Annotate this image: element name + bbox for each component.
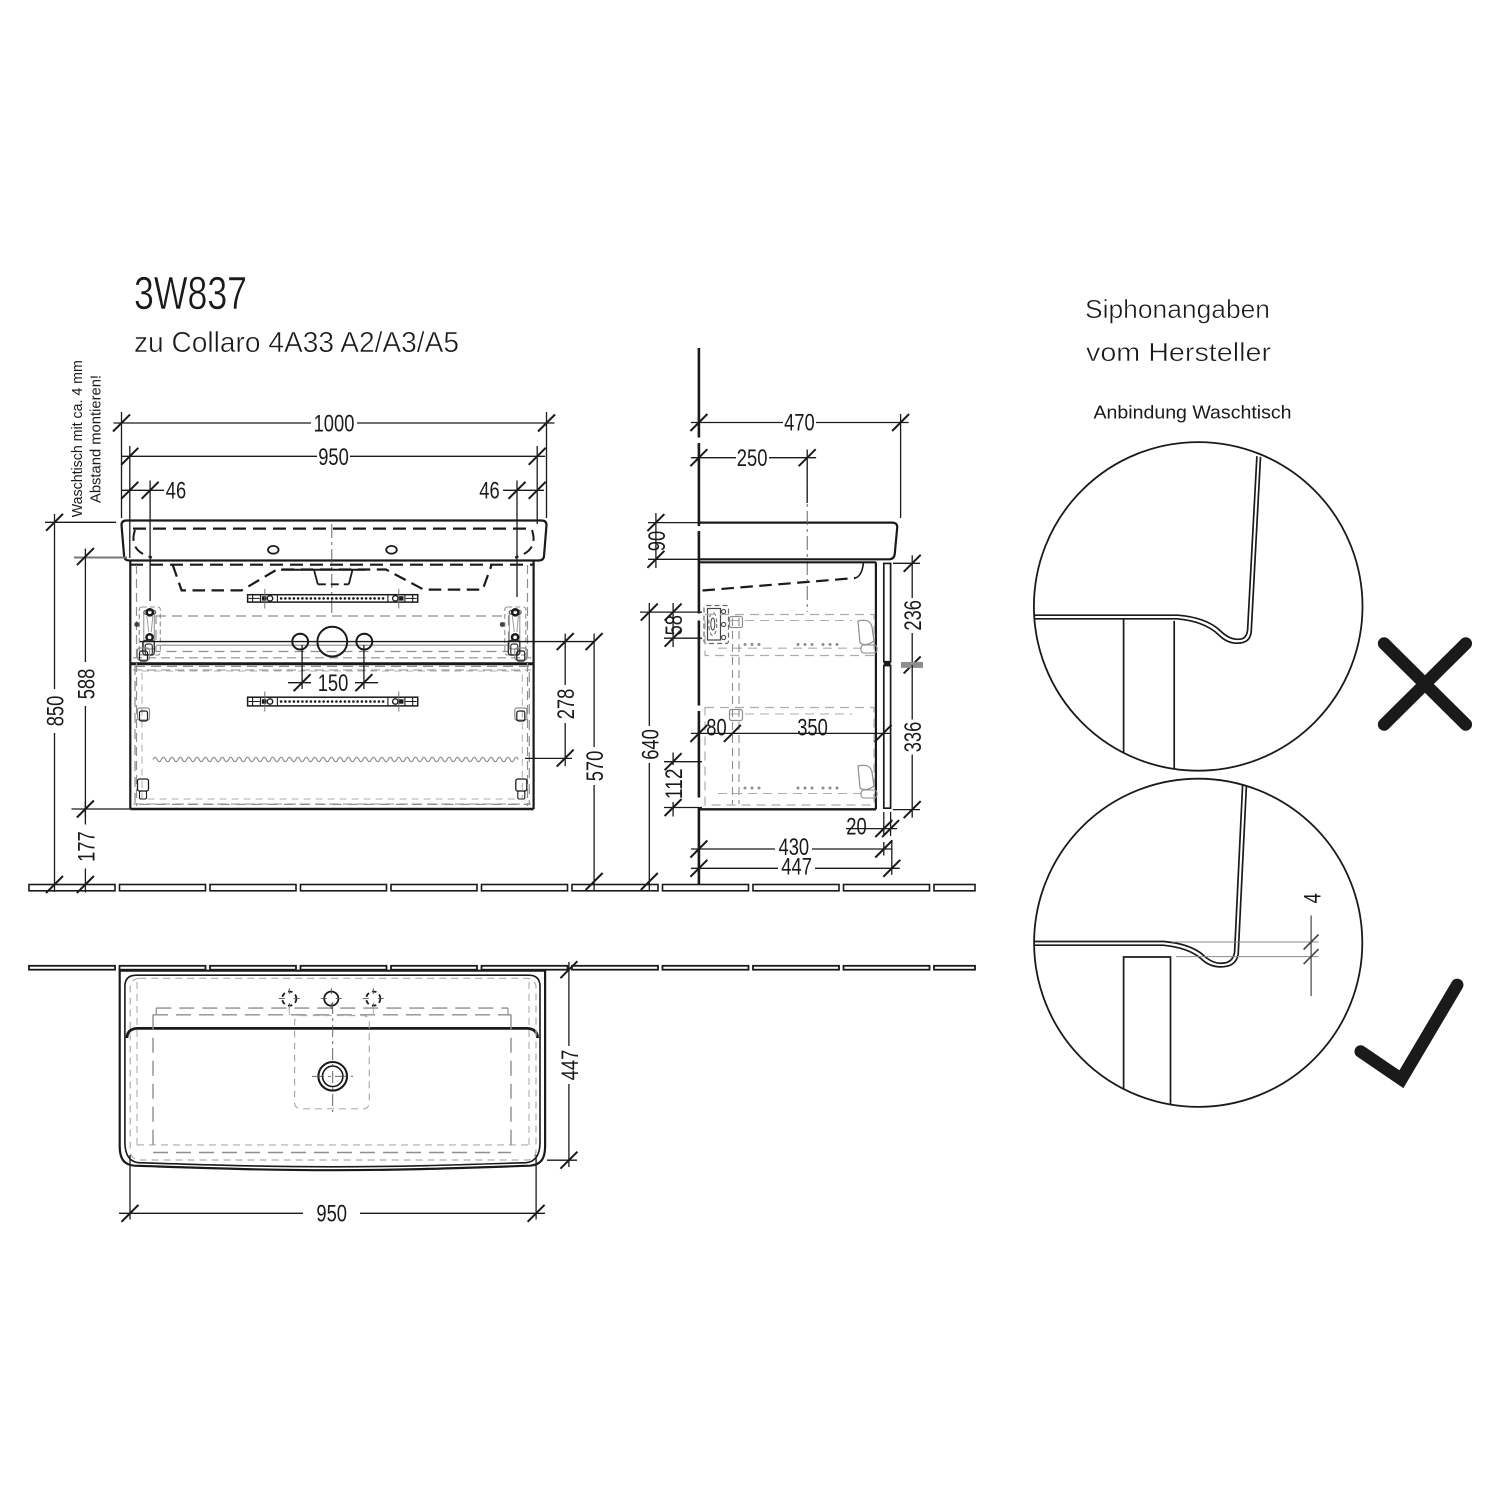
svg-text:90: 90 bbox=[644, 531, 671, 551]
svg-text:640: 640 bbox=[637, 729, 664, 760]
svg-text:950: 950 bbox=[318, 444, 349, 471]
svg-text:4: 4 bbox=[1300, 893, 1327, 903]
svg-text:Siphonangaben: Siphonangaben bbox=[1085, 294, 1270, 324]
svg-text:Anbindung Waschtisch: Anbindung Waschtisch bbox=[1094, 402, 1292, 423]
svg-text:447: 447 bbox=[781, 854, 812, 881]
svg-text:447: 447 bbox=[557, 1050, 584, 1081]
svg-text:46: 46 bbox=[166, 478, 186, 505]
svg-text:177: 177 bbox=[73, 831, 100, 862]
svg-text:46: 46 bbox=[479, 478, 499, 505]
svg-text:278: 278 bbox=[553, 689, 580, 720]
svg-text:588: 588 bbox=[73, 669, 100, 700]
svg-text:Waschtisch mit ca. 4 mm: Waschtisch mit ca. 4 mm bbox=[69, 360, 86, 517]
svg-text:470: 470 bbox=[784, 410, 815, 437]
svg-text:950: 950 bbox=[316, 1201, 347, 1228]
svg-text:350: 350 bbox=[797, 714, 828, 741]
svg-text:vom Hersteller: vom Hersteller bbox=[1086, 337, 1271, 367]
svg-text:zu Collaro 4A33 A2/A3/A5: zu Collaro 4A33 A2/A3/A5 bbox=[134, 327, 459, 359]
svg-text:570: 570 bbox=[582, 751, 609, 782]
svg-text:58: 58 bbox=[661, 615, 688, 635]
svg-text:850: 850 bbox=[43, 696, 70, 727]
svg-text:150: 150 bbox=[318, 670, 349, 697]
svg-text:1000: 1000 bbox=[314, 411, 355, 438]
svg-text:20: 20 bbox=[846, 814, 866, 841]
svg-text:236: 236 bbox=[900, 600, 927, 631]
svg-text:336: 336 bbox=[900, 722, 927, 753]
svg-text:80: 80 bbox=[706, 714, 726, 741]
svg-text:3W837: 3W837 bbox=[134, 267, 247, 319]
svg-text:250: 250 bbox=[737, 445, 768, 472]
svg-text:Abstand montieren!: Abstand montieren! bbox=[87, 375, 104, 503]
svg-text:112: 112 bbox=[661, 769, 688, 800]
